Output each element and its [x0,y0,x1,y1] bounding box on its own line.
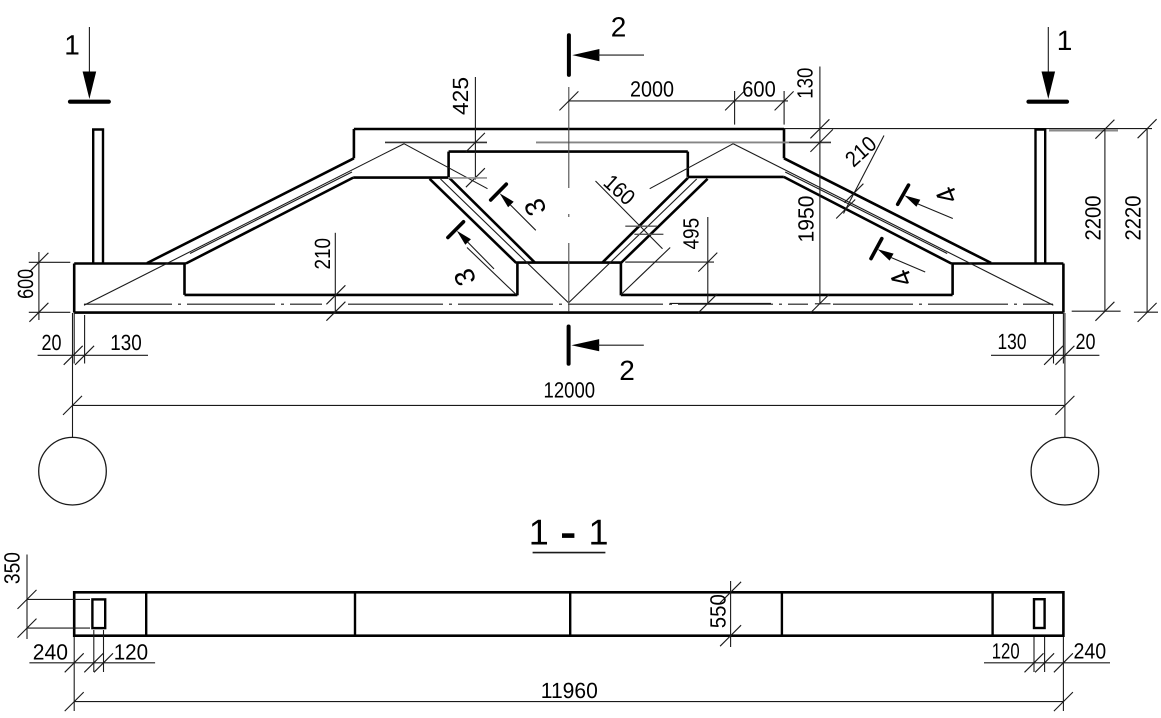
svg-text:130: 130 [110,330,142,355]
svg-text:11960: 11960 [541,678,598,703]
svg-text:2220: 2220 [1121,196,1146,241]
svg-text:2: 2 [619,355,635,386]
svg-text:130: 130 [998,329,1027,354]
svg-text:1: 1 [1057,25,1073,56]
svg-text:12000: 12000 [544,377,596,402]
svg-text:1: 1 [588,512,608,553]
svg-text:1950: 1950 [794,196,819,243]
svg-text:210: 210 [310,238,335,270]
svg-text:495: 495 [678,218,703,250]
svg-text:2000: 2000 [630,76,674,101]
svg-text:120: 120 [992,639,1020,664]
svg-text:1: 1 [64,30,80,61]
svg-text:240: 240 [1073,639,1106,664]
svg-text:240: 240 [33,640,68,665]
svg-text:350: 350 [0,552,24,584]
svg-text:2200: 2200 [1081,196,1106,241]
svg-text:600: 600 [742,76,776,101]
svg-text:425: 425 [448,77,473,115]
svg-text:130: 130 [793,68,818,99]
svg-text:20: 20 [42,330,62,355]
svg-text:120: 120 [114,640,148,665]
svg-text:550: 550 [705,594,730,628]
svg-text:2: 2 [611,11,627,42]
svg-text:1: 1 [529,512,549,553]
svg-text:20: 20 [1076,329,1096,354]
svg-text:600: 600 [13,269,38,299]
